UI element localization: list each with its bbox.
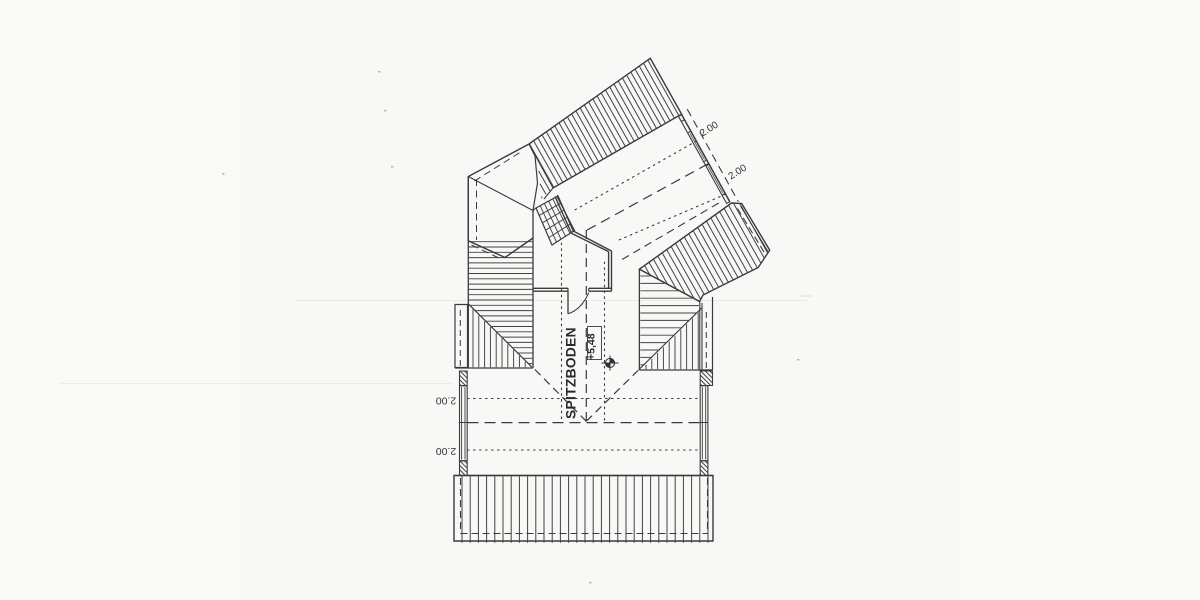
- svg-text:SPITZBODEN: SPITZBODEN: [564, 327, 579, 419]
- svg-text:2.00: 2.00: [436, 445, 457, 457]
- svg-text:2.00: 2.00: [436, 395, 457, 407]
- svg-text:+5,48: +5,48: [586, 333, 598, 360]
